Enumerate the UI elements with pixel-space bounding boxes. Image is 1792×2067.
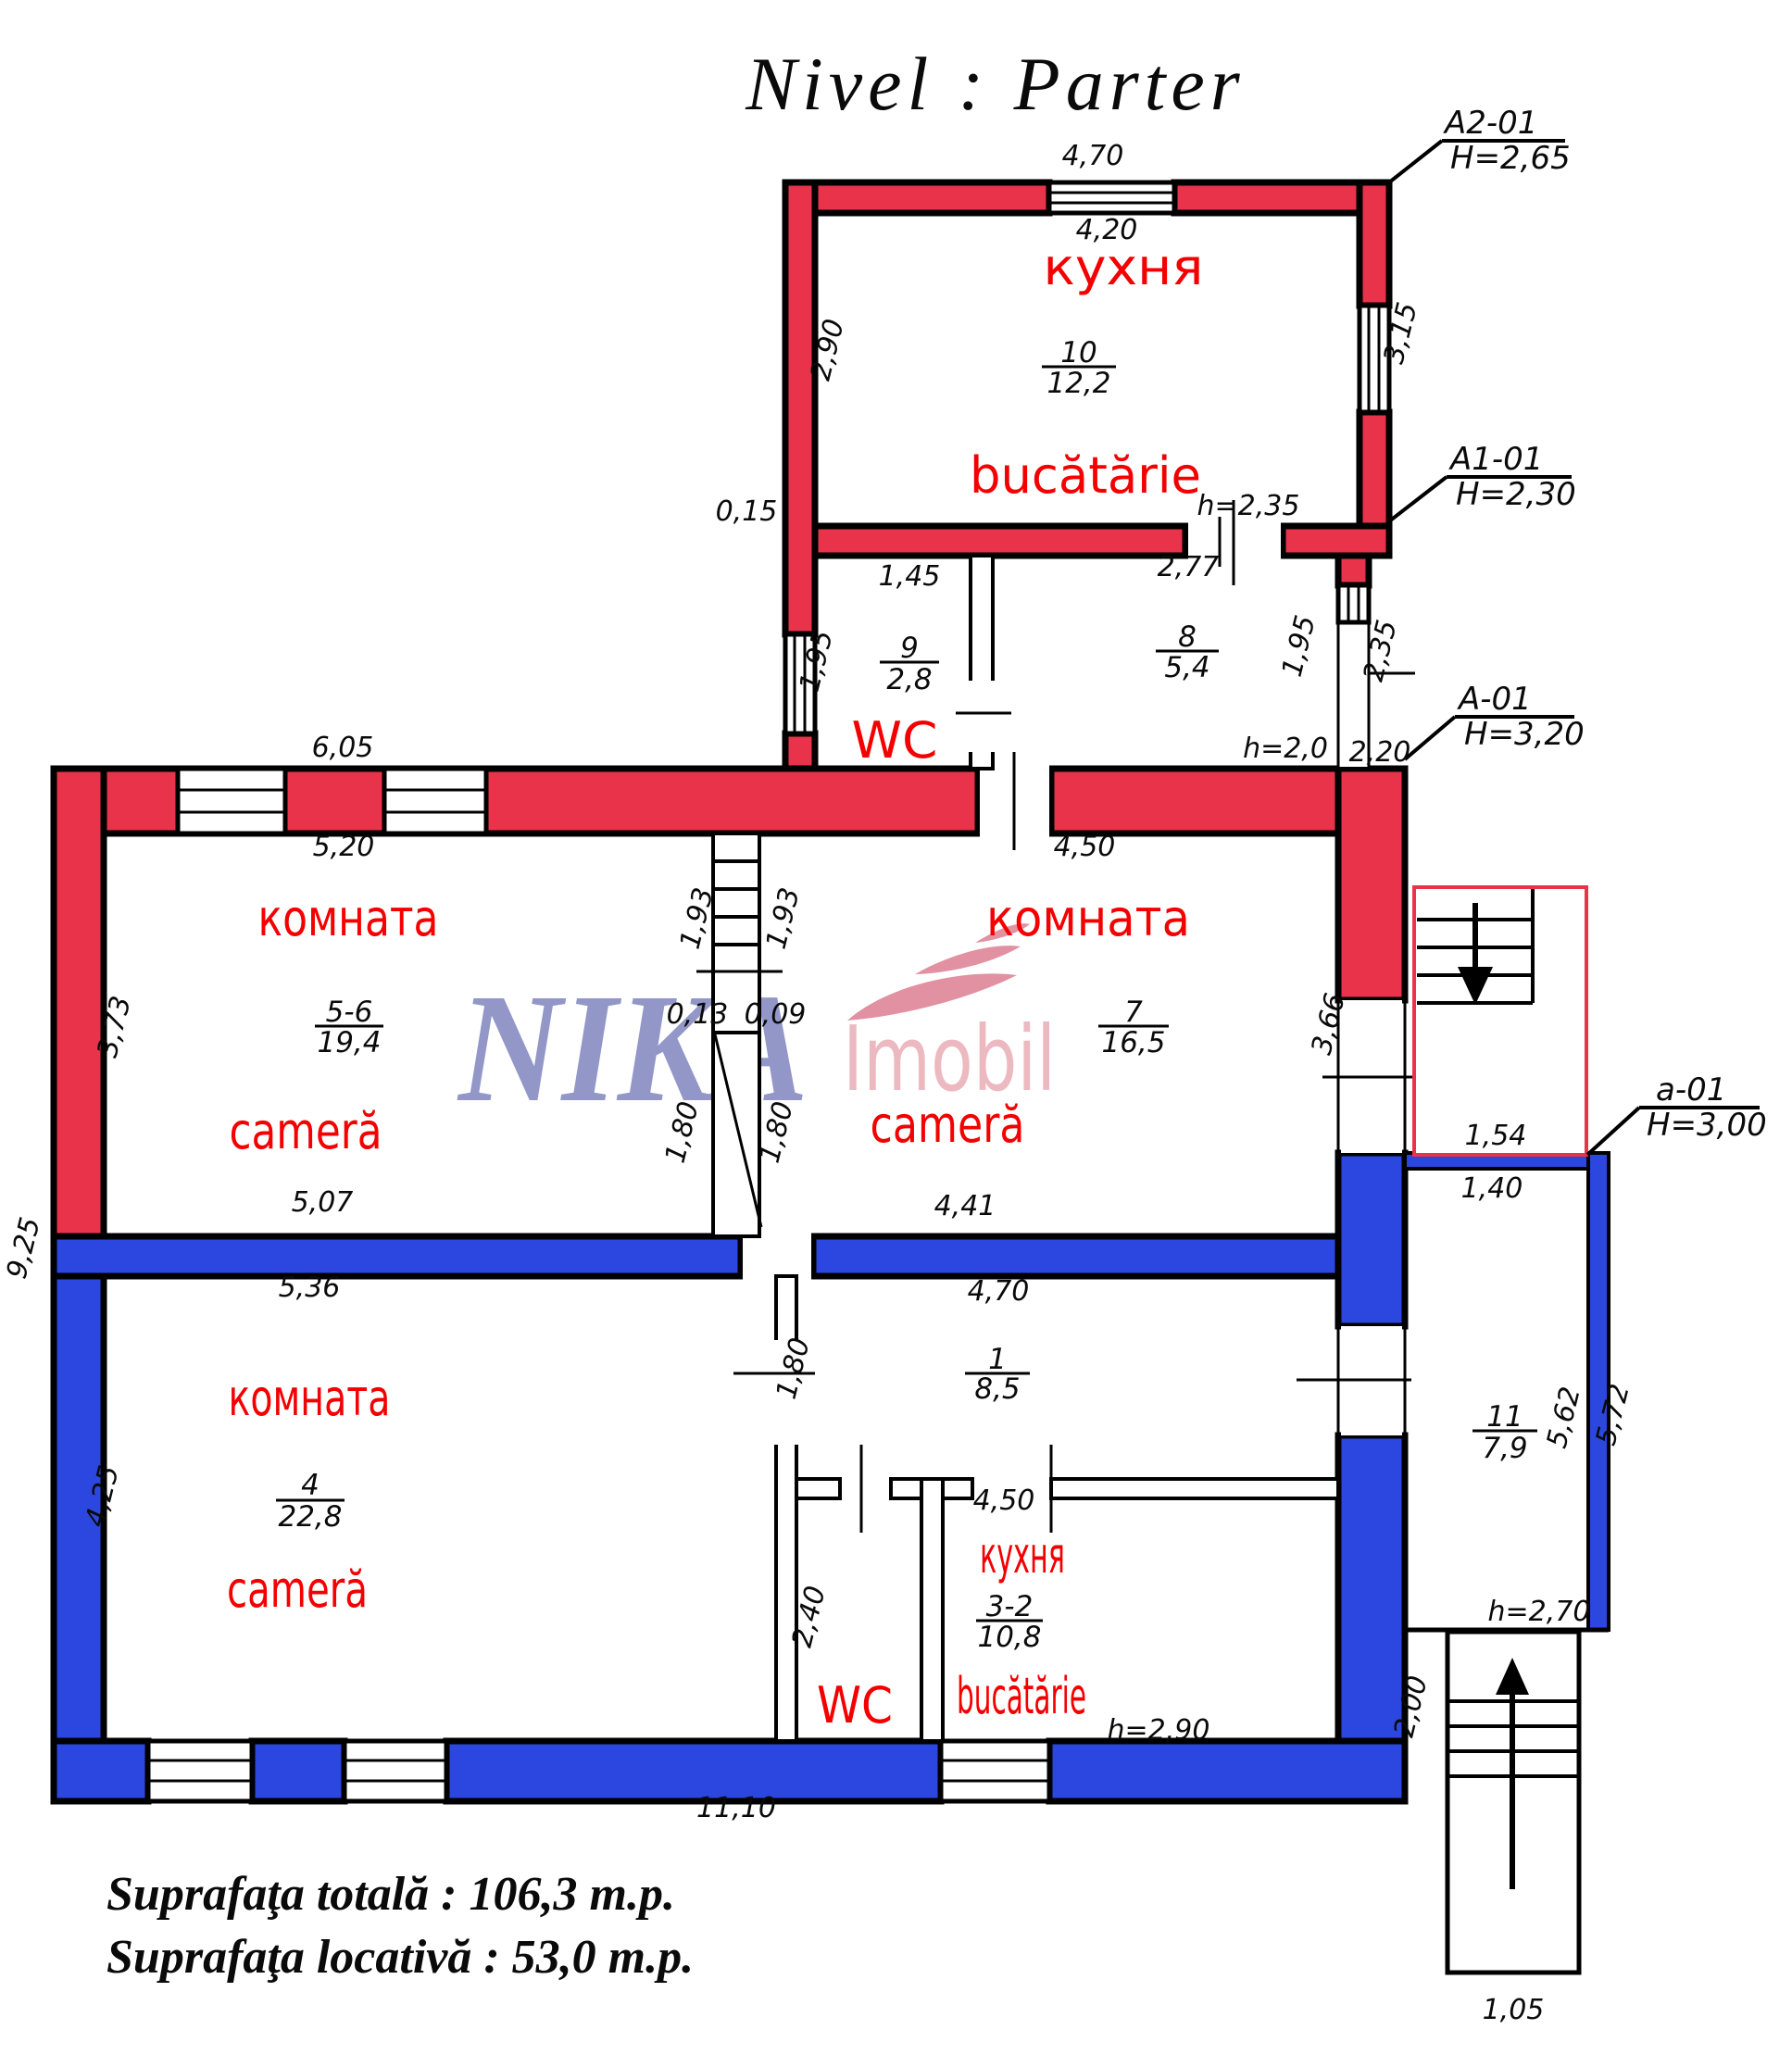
room-number: 1 xyxy=(988,1343,1007,1376)
dimension-label: 1,95 xyxy=(1276,612,1322,680)
room-label-room4-ru: комната xyxy=(229,1369,391,1427)
dimension-label: 2,77 xyxy=(1158,551,1220,583)
room-area: 10,8 xyxy=(977,1621,1041,1654)
dimension-label: 0,09 xyxy=(745,998,807,1031)
annotation-height: H=3,20 xyxy=(1464,716,1585,753)
dimension-label: 4,50 xyxy=(973,1484,1035,1517)
floor-plan-canvas: NIKA Imobil xyxy=(0,0,1792,2067)
room-area: 22,8 xyxy=(278,1500,342,1534)
fraction-room7: 7 16,5 xyxy=(1098,996,1169,1059)
dimension-label: h=2,35 xyxy=(1197,490,1300,522)
dimension-label: 4,41 xyxy=(934,1190,996,1222)
dimension-label: 1,45 xyxy=(879,560,941,593)
room-area: 19,4 xyxy=(317,1026,381,1059)
dimension-label: 6,05 xyxy=(312,732,374,764)
annotation-code: A-01 xyxy=(1457,681,1532,718)
room-area: 12,2 xyxy=(1046,367,1110,400)
room-area: 8,5 xyxy=(974,1372,1020,1406)
room-number: 8 xyxy=(1178,620,1197,654)
annotation-height: H=2,30 xyxy=(1456,476,1576,513)
room-label-room7-ro: cameră xyxy=(871,1096,1025,1154)
dimension-label: 4,20 xyxy=(1076,214,1138,246)
floor-plan-page: NIKA Imobil xyxy=(0,0,1792,2067)
dimension-label: 9,25 xyxy=(1,1214,47,1282)
room-number: 7 xyxy=(1124,996,1143,1029)
page-title: Nivel : Parter xyxy=(745,42,1245,126)
room-number: 9 xyxy=(900,632,919,665)
dimension-label: 11,10 xyxy=(696,1792,776,1824)
room-label-kitchen-bottom-ru: кухня xyxy=(980,1526,1065,1585)
dimension-label: 4,70 xyxy=(968,1275,1030,1308)
dimension-label: 5,62 xyxy=(1541,1384,1587,1451)
fraction-room11: 11 7,9 xyxy=(1472,1400,1537,1465)
dimension-label: 1,93 xyxy=(760,884,807,952)
dimension-label: h=2,90 xyxy=(1108,1714,1210,1747)
dimension-label: h=2,70 xyxy=(1488,1596,1591,1628)
room-label-kitchen-top-ro: bucătărie xyxy=(970,446,1201,505)
annotation-code: A1-01 xyxy=(1448,441,1543,478)
room-label-room56-ro: cameră xyxy=(230,1102,382,1160)
annotation-height: H=2,65 xyxy=(1450,140,1571,177)
annotation-code: a-01 xyxy=(1656,1071,1726,1109)
room-label-room7-ru: комната xyxy=(986,889,1190,947)
room-number: 11 xyxy=(1486,1400,1523,1434)
dimension-label: 1,54 xyxy=(1465,1120,1527,1152)
room-label-room4-ro: cameră xyxy=(227,1560,368,1619)
fraction-room4: 4 22,8 xyxy=(276,1469,345,1534)
fraction-room56: 5-6 19,4 xyxy=(315,996,383,1059)
stairs-upper xyxy=(1414,887,1586,1155)
dimension-label: 5,07 xyxy=(292,1186,354,1219)
room-area: 2,8 xyxy=(886,663,932,696)
dimension-label: 1,05 xyxy=(1483,1994,1545,2026)
room-label-wc-top: WC xyxy=(852,711,938,770)
room-number: 4 xyxy=(301,1469,320,1502)
summary-block: Suprafaţa totală : 106,3 m.p. Suprafaţa … xyxy=(107,1868,694,1984)
dimension-label: 5,36 xyxy=(279,1272,341,1304)
summary-living-area: Suprafaţa locativă : 53,0 m.p. xyxy=(107,1931,694,1984)
dimension-label: 4,70 xyxy=(1062,140,1124,172)
room-label-kitchen-bottom-ro: bucătărie xyxy=(957,1667,1086,1725)
dimension-label: 0,15 xyxy=(716,495,778,528)
room-area: 16,5 xyxy=(1101,1026,1165,1059)
summary-total-area: Suprafaţa totală : 106,3 m.p. xyxy=(107,1868,675,1921)
stairs-lower xyxy=(1447,1632,1579,1973)
annotation-code: A2-01 xyxy=(1443,105,1537,142)
dimension-label: 4,50 xyxy=(1054,831,1116,863)
fraction-kitchen-bottom: 3-2 10,8 xyxy=(976,1590,1043,1654)
dimension-label: 2,20 xyxy=(1349,736,1411,769)
fraction-hall1: 1 8,5 xyxy=(965,1343,1030,1406)
annotation-height: H=3,00 xyxy=(1647,1107,1767,1144)
fraction-hall8: 8 5,4 xyxy=(1156,620,1219,684)
room-label-wc-bottom: WC xyxy=(817,1676,893,1735)
room-label-kitchen-top-ru: кухня xyxy=(1044,238,1204,296)
dimension-label: 1,40 xyxy=(1461,1172,1523,1205)
dimension-label: 5,20 xyxy=(313,831,375,863)
room-area: 5,4 xyxy=(1164,651,1209,684)
room-number: 5-6 xyxy=(326,996,373,1029)
room-label-room56-ru: комната xyxy=(258,889,439,947)
room-area: 7,9 xyxy=(1482,1432,1527,1465)
room-number: 10 xyxy=(1060,336,1097,370)
dimension-label: h=2,0 xyxy=(1243,733,1328,765)
fraction-wc-top: 9 2,8 xyxy=(880,632,939,696)
room-number: 3-2 xyxy=(986,1590,1034,1623)
dimension-label: 0,13 xyxy=(667,998,729,1031)
fraction-kitchen-top: 10 12,2 xyxy=(1042,336,1116,400)
